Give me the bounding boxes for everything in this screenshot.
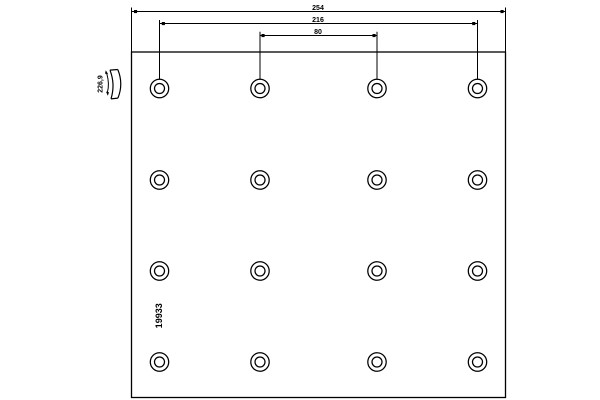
svg-text:226,9: 226,9	[98, 75, 105, 93]
svg-text:254: 254	[312, 5, 324, 12]
svg-text:19933: 19933	[154, 303, 164, 328]
svg-text:80: 80	[314, 29, 322, 36]
svg-text:216: 216	[312, 17, 324, 24]
